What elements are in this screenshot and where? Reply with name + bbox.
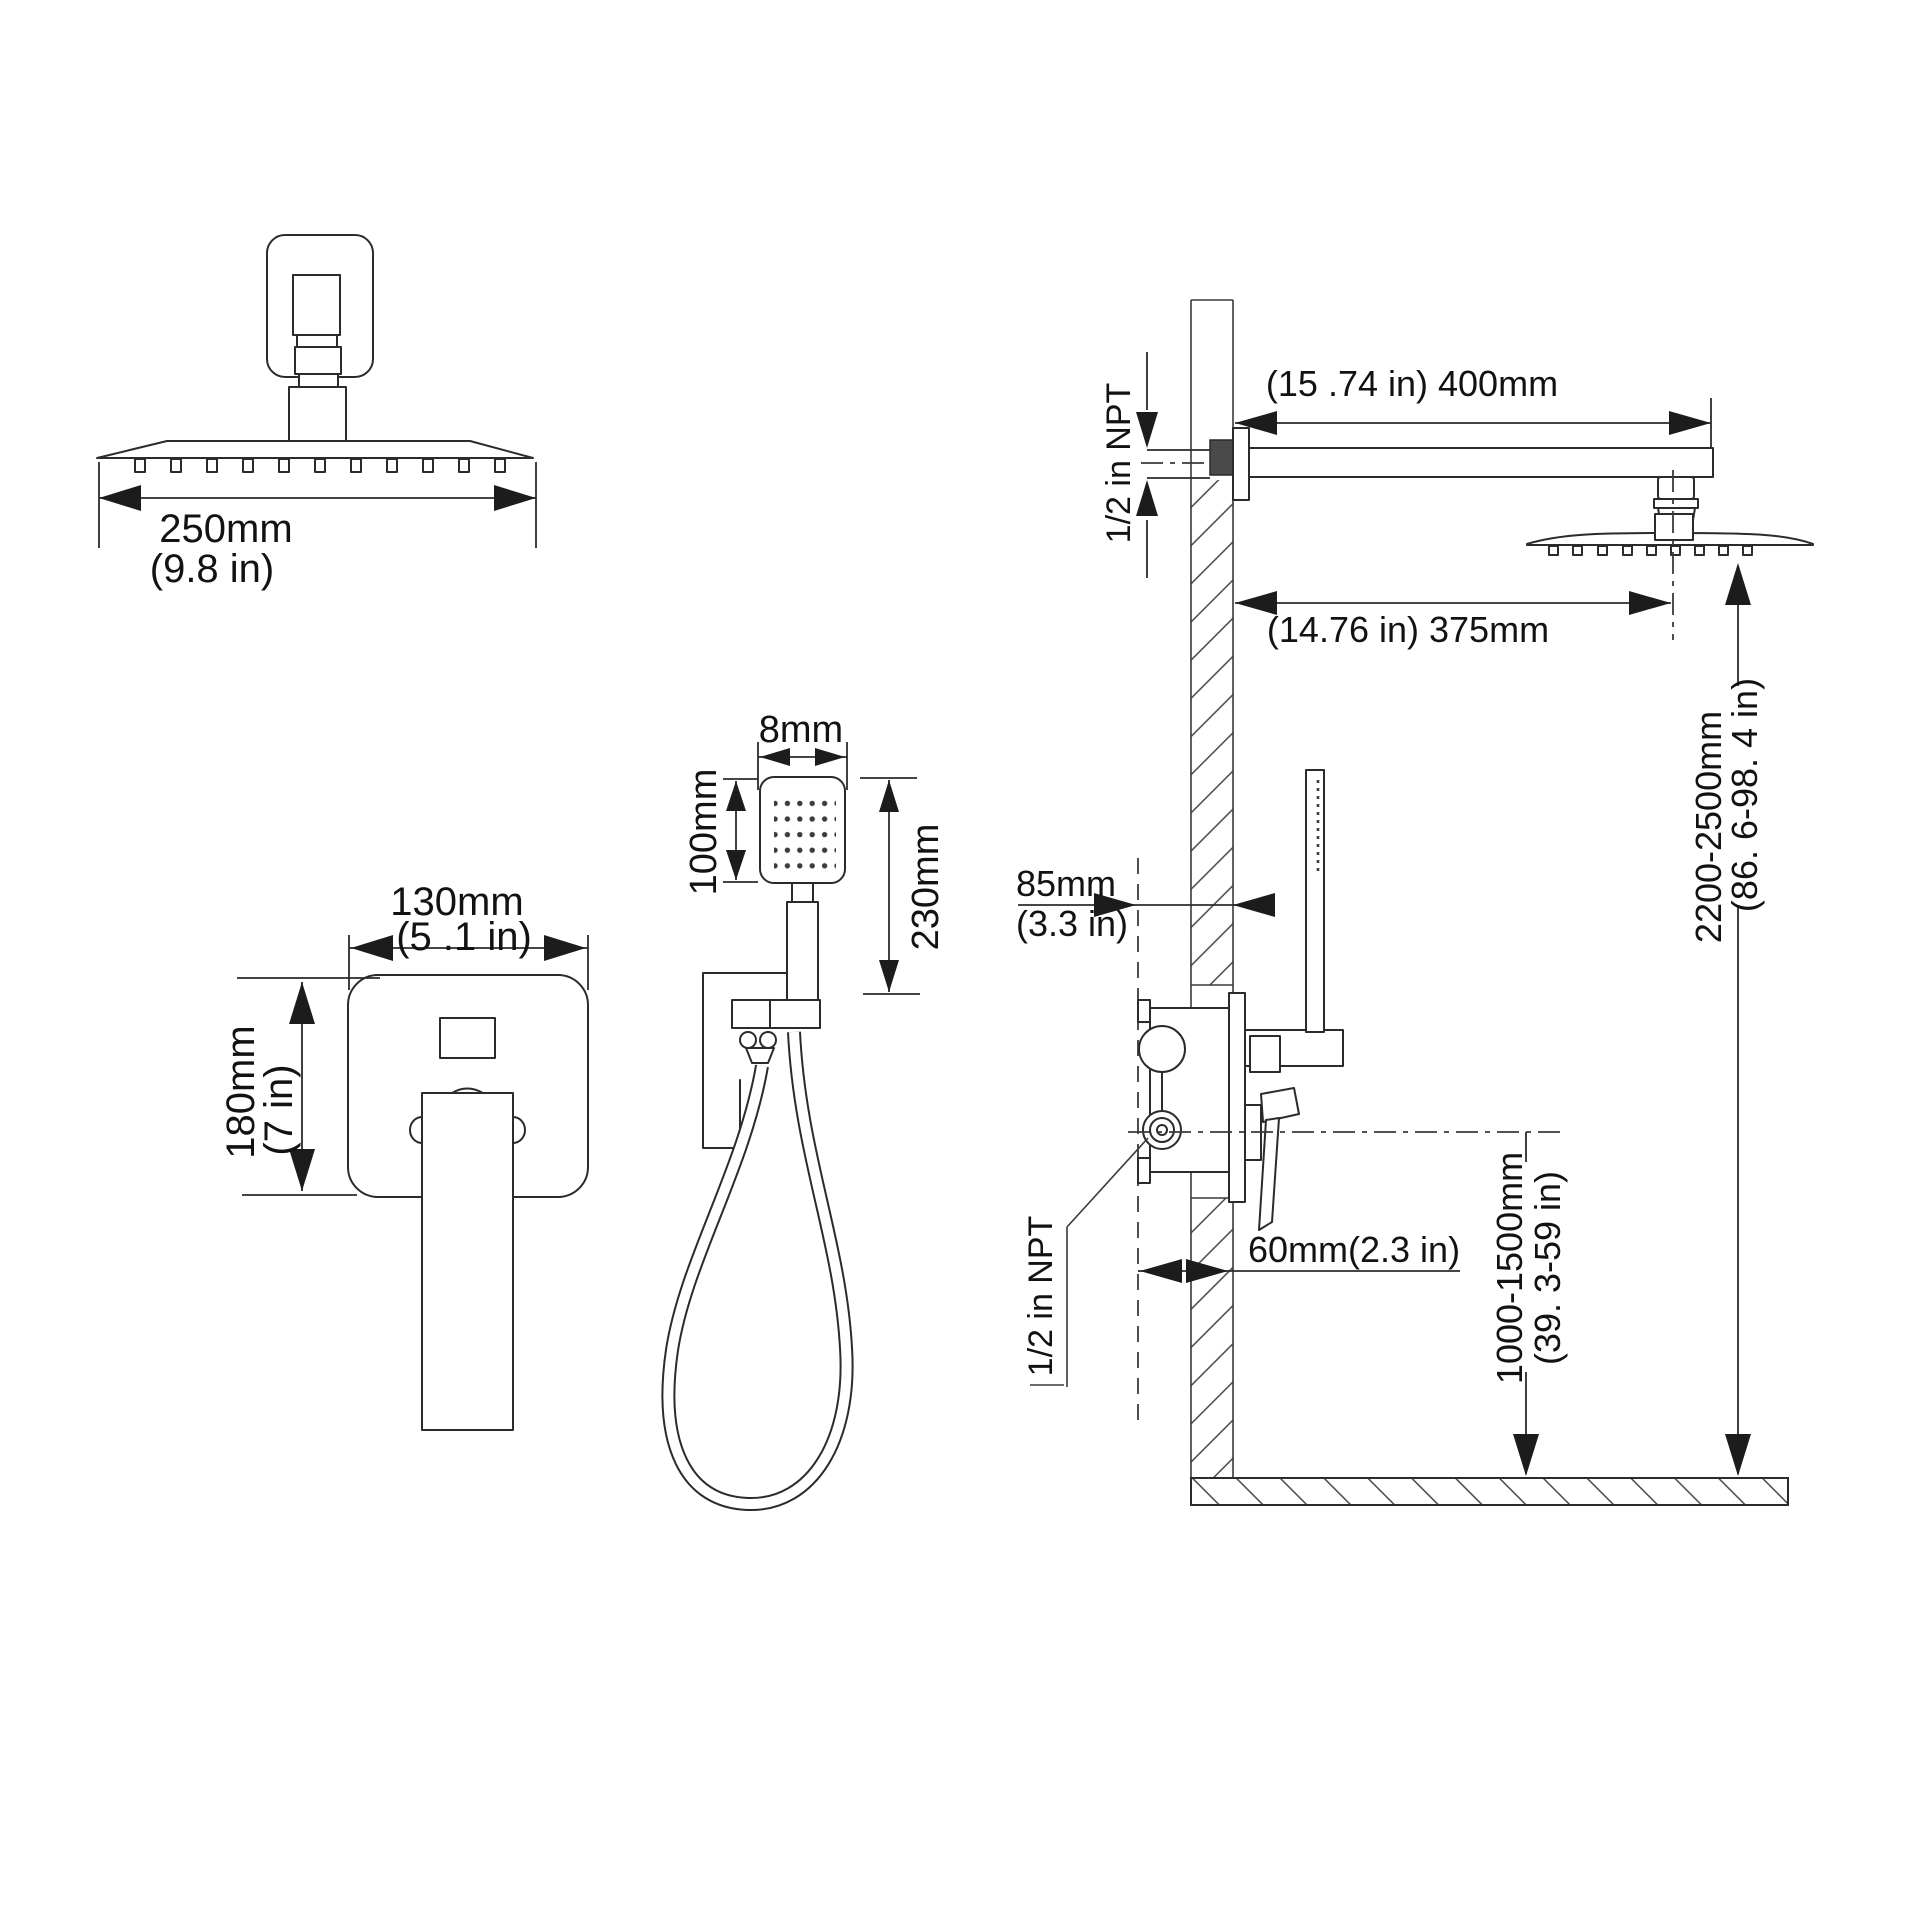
arm-wall-flange — [1233, 428, 1249, 500]
dim-100mm: 100mm — [683, 769, 758, 896]
shower-hose — [668, 1032, 846, 1504]
hand-shower-handle — [787, 902, 818, 1000]
nozzle — [243, 459, 253, 472]
hand-shower-neck — [792, 883, 813, 902]
arm-section — [293, 275, 340, 335]
dim-label-3-3in: (3.3 in) — [1016, 903, 1128, 944]
hose-body — [668, 1032, 846, 1504]
nozzle — [171, 459, 181, 472]
dim-400mm: (15 .74 in) 400mm — [1235, 363, 1711, 448]
valve-tab-top — [1138, 1000, 1150, 1022]
nozzle — [423, 459, 433, 472]
valve-top-port — [1139, 1026, 1185, 1072]
nozzle — [279, 459, 289, 472]
figure-installation-side-view: (15 .74 in) 400mm (14.76 in) 375mm 1/2 i… — [1016, 300, 1813, 1505]
nozzle — [135, 459, 145, 472]
valve-inlet-outer — [1143, 1111, 1181, 1149]
nozzle — [351, 459, 361, 472]
hose-nut-right — [760, 1032, 776, 1048]
dim-60mm: 60mm(2.3 in) — [1138, 1229, 1460, 1283]
dim-label-375mm: (14.76 in) 375mm — [1267, 609, 1549, 650]
head-connector-nut — [1658, 477, 1694, 499]
dim-label-60mm: 60mm(2.3 in) — [1248, 1229, 1460, 1270]
spray-dot-grid — [774, 792, 836, 870]
dim-label-2200-2500mm: 2200-2500mm — [1688, 711, 1729, 943]
dim-label-230mm: 230mm — [905, 824, 947, 951]
dim-label-85mm: 85mm — [1016, 863, 1116, 904]
hand-shower-side — [1306, 770, 1324, 1032]
lever-hub — [1261, 1088, 1299, 1122]
valve-trim-edge — [1229, 993, 1245, 1202]
label-npt-valve: 1/2 in NPT — [1022, 1216, 1060, 1377]
nozzle — [459, 459, 469, 472]
nozzle — [495, 459, 505, 472]
hose-holder-block — [732, 1000, 820, 1028]
rain-head-nozzles — [1549, 546, 1752, 555]
arm-collar — [295, 347, 341, 374]
figure-valve-front-view: 130mm (5 .1 in) 180mm (7 in) — [219, 880, 588, 1430]
floor — [1191, 1478, 1788, 1505]
nozzle — [315, 459, 325, 472]
dim-label-100mm: 100mm — [683, 769, 725, 896]
dim-label-9-8in: (9.8 in) — [150, 547, 275, 591]
head-connector-ring — [1654, 499, 1698, 508]
nozzle — [207, 459, 217, 472]
diagram-page: 250mm (9.8 in) 130mm (5 .1 in) 180mm (7 … — [0, 0, 1920, 1920]
dim-label-39-59in: (39. 3-59 in) — [1527, 1171, 1568, 1365]
shower-diagram-canvas: 250mm (9.8 in) 130mm (5 .1 in) 180mm (7 … — [0, 0, 1920, 1920]
nozzle — [1573, 546, 1582, 555]
head-plate — [97, 441, 533, 458]
hose-cone — [746, 1048, 774, 1063]
dim-375mm: (14.76 in) 375mm — [1235, 591, 1671, 650]
wall-hatch-upper — [1191, 480, 1233, 985]
dim-label-250mm: 250mm — [159, 507, 292, 551]
figure-rain-head-top-view: 250mm (9.8 in) — [97, 235, 536, 591]
label-npt-arm: 1/2 in NPT — [1100, 383, 1138, 544]
nozzle — [1743, 546, 1752, 555]
dim-label-1000-1500mm: 1000-1500mm — [1489, 1152, 1530, 1384]
dim-250mm: 250mm (9.8 in) — [99, 462, 536, 591]
rain-head-hub — [1655, 514, 1693, 540]
dim-label-8mm: 8mm — [759, 709, 843, 751]
swivel-block — [289, 387, 346, 441]
dim-230mm: 230mm — [860, 778, 947, 994]
head-nozzle-row — [135, 459, 505, 472]
shower-arm — [1233, 448, 1713, 477]
dim-label-5-1in: (5 .1 in) — [396, 915, 532, 959]
hose-nut-left — [740, 1032, 756, 1048]
dim-label-7in: (7 in) — [257, 1064, 301, 1155]
valve-handle — [422, 1093, 513, 1430]
holder-block-side — [1250, 1036, 1280, 1072]
nozzle — [1719, 546, 1728, 555]
valve-tab-bottom — [1138, 1158, 1150, 1183]
nozzle — [387, 459, 397, 472]
wall-hatch-lower — [1191, 1198, 1233, 1478]
dim-label-400mm: (15 .74 in) 400mm — [1266, 363, 1558, 404]
arm-step — [297, 335, 337, 347]
arm-neck — [299, 374, 338, 387]
dim-1000-1500: 1000-1500mm (39. 3-59 in) — [1489, 1132, 1568, 1476]
dim-label-86-98in: (86. 6-98. 4 in) — [1724, 678, 1765, 912]
nozzle — [1623, 546, 1632, 555]
wall-supply-fitting — [1210, 440, 1233, 475]
nozzle — [1549, 546, 1558, 555]
nozzle — [1647, 546, 1656, 555]
nozzle — [1598, 546, 1607, 555]
diverter-button — [440, 1018, 495, 1058]
figure-hand-shower: 8mm 100mm 230mm — [668, 709, 947, 1504]
dim-npt-valve: 1/2 in NPT — [1022, 1138, 1148, 1387]
rough-in-valve — [1138, 993, 1299, 1230]
dim-130mm: 130mm (5 .1 in) — [349, 880, 588, 990]
nozzle — [1695, 546, 1704, 555]
dim-2200-2500: 2200-2500mm (86. 6-98. 4 in) — [1688, 563, 1765, 1476]
